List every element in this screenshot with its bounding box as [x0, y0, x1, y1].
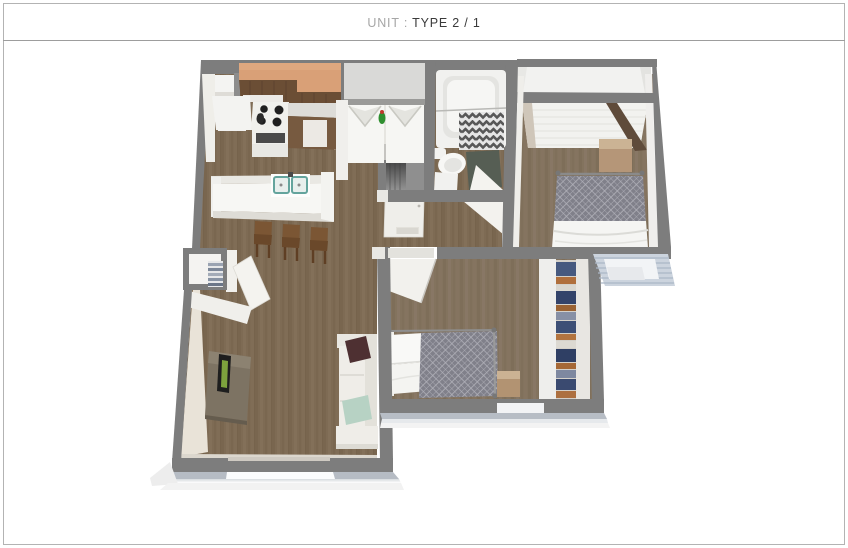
svg-text:UNIT : TYPE 2 / 1: UNIT : TYPE 2 / 1 [367, 16, 480, 30]
